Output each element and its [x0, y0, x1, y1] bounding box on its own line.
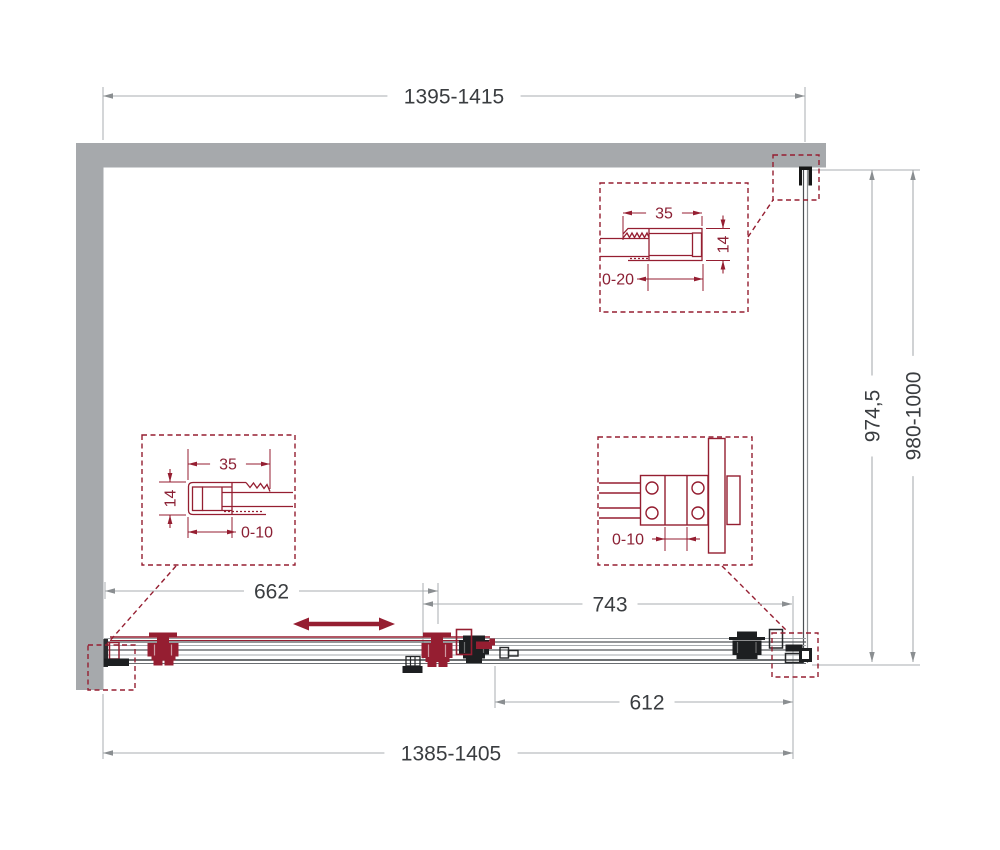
- dimension-label-fixed-glass-width: 612: [629, 691, 664, 714]
- detail-callout-boxes: [88, 155, 819, 690]
- bottom-track: [104, 639, 806, 664]
- drawing-canvas: 1395-1415974,5980-10006627436121385-1405…: [0, 0, 1000, 850]
- detail-top-wall-profile-ticks: [623, 216, 730, 291]
- callout-leader: [748, 200, 773, 237]
- dimension-label-top-width: 1395-1415: [404, 85, 504, 108]
- callout-leader: [722, 566, 788, 632]
- dimension-label-bottom-width: 1385-1405: [401, 742, 501, 765]
- detail-left-wall-profile-drawing: [189, 483, 294, 515]
- dimension-label-total-height: 980-1000: [902, 372, 925, 461]
- dimension-label-left-profile-adjust: 0-10: [241, 525, 273, 542]
- fixed-panel-roller-right: [729, 632, 765, 660]
- wall: [76, 143, 826, 690]
- dimension-total-height: 980-1000: [902, 170, 925, 662]
- dimension-label-glass-height: 974,5: [861, 390, 884, 443]
- dimension-label-top-profile-depth: 14: [716, 236, 733, 254]
- fixed-glass-panel: [799, 167, 812, 664]
- dimension-label-connector-adjust: 0-10: [612, 532, 644, 549]
- extension-lines: [103, 87, 920, 759]
- dimension-fixed-glass-width: 612: [495, 691, 793, 714]
- dimension-right-panel-width: 743: [423, 593, 792, 616]
- slide-direction-arrow-icon: [293, 618, 395, 631]
- door-bumper: [476, 642, 492, 650]
- dimension-left-door-width: 662: [105, 580, 438, 603]
- dimension-label-left-profile-depth: 14: [163, 490, 180, 508]
- dimension-top-profile-adjust: 0-20: [602, 272, 703, 289]
- dimension-label-top-profile-adjust: 0-20: [602, 272, 634, 289]
- detail-top-wall-profile-drawing: [600, 229, 702, 261]
- track-stopper: [403, 657, 423, 674]
- dimension-left-profile-depth: 14: [163, 469, 180, 528]
- callout-leader: [107, 566, 176, 644]
- dimension-top-profile-depth: 14: [716, 216, 733, 274]
- fixed-panel-roller-left: [459, 636, 489, 664]
- dimension-left-profile-adjust: 0-10: [188, 525, 273, 542]
- dimension-glass-height: 974,5: [861, 170, 884, 662]
- dimension-label-left-door-width: 662: [254, 580, 289, 603]
- dimension-top-width: 1395-1415: [103, 85, 805, 108]
- panel-clamp: [500, 648, 518, 659]
- technical-drawing: 1395-1415974,5980-10006627436121385-1405…: [0, 0, 1000, 850]
- dimension-left-profile-width: 35: [188, 457, 270, 474]
- glass-top-wall-bracket: [799, 167, 812, 186]
- dimension-bottom-width: 1385-1405: [103, 742, 793, 765]
- dimension-top-profile-width: 35: [623, 206, 702, 223]
- dimension-label-left-profile-width: 35: [219, 457, 237, 474]
- dimension-label-top-profile-width: 35: [655, 206, 673, 223]
- dimension-label-right-panel-width: 743: [592, 593, 627, 616]
